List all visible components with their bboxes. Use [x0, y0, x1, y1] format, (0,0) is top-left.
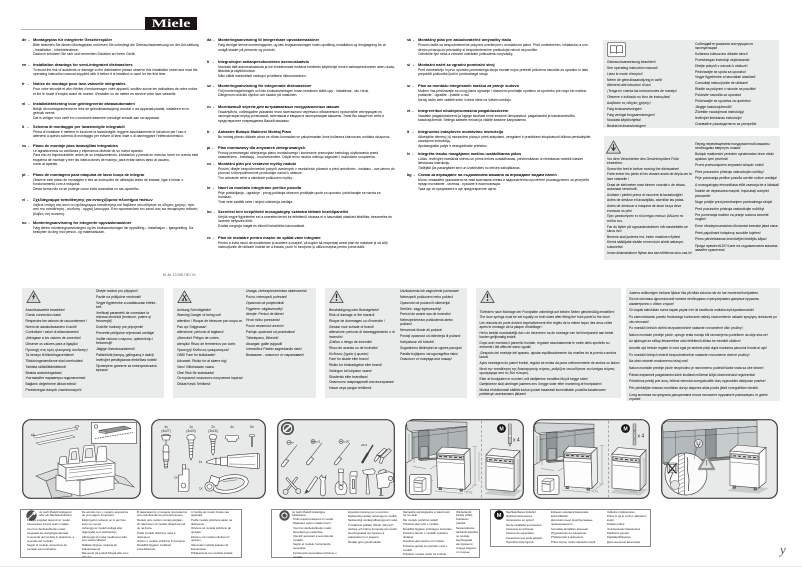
- svg-text:1x: 1x: [199, 487, 203, 491]
- svg-text:x 4: x 4: [638, 434, 645, 440]
- svg-text:(4x22): (4x22): [186, 429, 196, 433]
- svg-text:*XXL: *XXL: [502, 489, 512, 494]
- svg-text:tx20: tx20: [344, 440, 350, 444]
- svg-text:M: M: [496, 513, 501, 519]
- svg-text:M: M: [499, 426, 503, 432]
- svg-text:*XXL: *XXL: [628, 489, 638, 494]
- svg-text:M: M: [623, 426, 627, 432]
- svg-text:(3x15): (3x15): [208, 429, 218, 433]
- svg-text:1x: 1x: [174, 476, 178, 480]
- svg-text:5x: 5x: [250, 425, 254, 429]
- svg-text:*XXL: *XXL: [464, 489, 474, 494]
- svg-text:(4x27): (4x27): [161, 429, 171, 433]
- svg-text:1x: 1x: [199, 460, 203, 464]
- svg-text:ø5,5: ø5,5: [361, 443, 367, 447]
- svg-text:*XXL: *XXL: [590, 489, 600, 494]
- svg-text:x 4: x 4: [513, 437, 520, 443]
- svg-text:pz2: pz2: [316, 440, 321, 444]
- svg-text:4x: 4x: [230, 425, 234, 429]
